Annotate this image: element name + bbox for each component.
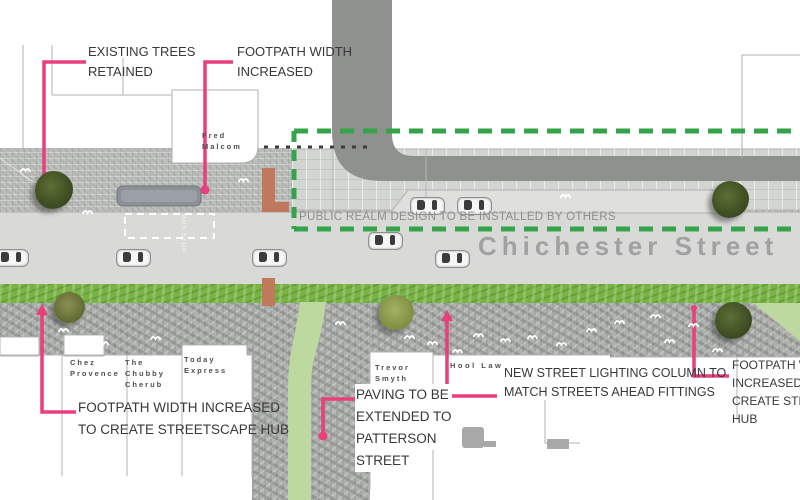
pedestrian-mark-icon bbox=[688, 315, 699, 322]
note-line: NEW STREET LIGHTING COLUMN TO bbox=[504, 364, 726, 383]
note-line: CREATE STREET bbox=[732, 392, 800, 410]
note-line: FOOTPATH WIDTH INCREASED bbox=[78, 397, 289, 419]
pedestrian-mark-icon bbox=[98, 333, 109, 340]
note-line: TO CREATE STREETSCAPE HUB bbox=[78, 419, 289, 441]
note-line: FOOTPATH WIDTH bbox=[237, 42, 352, 62]
note-line: INCREASED bbox=[237, 62, 352, 82]
note-paving: PAVING TO BE EXTENDED TO PATTERSON STREE… bbox=[355, 384, 455, 472]
pedestrian-mark-icon bbox=[500, 330, 511, 337]
pedestrian-mark-icon bbox=[560, 186, 571, 193]
tree-icon bbox=[712, 181, 749, 218]
building-label-hool-law: Hool Law bbox=[450, 360, 503, 371]
pedestrian-mark-icon bbox=[614, 312, 625, 319]
note-line: EXISTING TREES bbox=[88, 42, 195, 62]
pedestrian-mark-icon bbox=[20, 160, 31, 167]
tree-icon bbox=[379, 295, 414, 330]
plan-canvas: EXISTING TREES RETAINED FOOTPATH WIDTH I… bbox=[0, 0, 800, 500]
note-line: INCREASED TO bbox=[732, 374, 800, 392]
tree-icon bbox=[54, 292, 85, 323]
note-line: EXTENDED TO bbox=[355, 406, 455, 428]
pedestrian-mark-icon bbox=[586, 320, 597, 327]
pedestrian-mark-icon bbox=[556, 334, 567, 341]
note-public-realm: PUBLIC REALM DESIGN TO BE INSTALLED BY O… bbox=[299, 211, 616, 223]
pedestrian-mark-icon bbox=[335, 313, 346, 320]
tree-icon bbox=[715, 302, 752, 339]
car-icon bbox=[435, 250, 470, 268]
pedestrian-mark-icon bbox=[527, 327, 538, 334]
pedestrian-mark-icon bbox=[58, 320, 69, 327]
note-line: PAVING TO BE bbox=[355, 384, 452, 406]
pedestrian-mark-icon bbox=[664, 331, 675, 338]
note-lighting: NEW STREET LIGHTING COLUMN TO MATCH STRE… bbox=[504, 364, 726, 402]
car-icon bbox=[116, 249, 151, 267]
note-line: HUB bbox=[732, 410, 800, 428]
note-line: RETAINED bbox=[88, 62, 195, 82]
building-label-chubby-cherub: The Chubby Cherub bbox=[125, 357, 165, 390]
note-line: MATCH STREETS AHEAD FITTINGS bbox=[504, 383, 726, 402]
building-label-fred-malcom: Fred Malcom bbox=[202, 130, 242, 152]
note-footpath-right: FOOTPATH WID INCREASED TO CREATE STREET … bbox=[732, 356, 800, 428]
bus-stop-marking-text: BUS STOP bbox=[180, 215, 186, 253]
tree-icon bbox=[35, 171, 73, 209]
pedestrian-mark-icon bbox=[650, 306, 661, 313]
note-footpath-left: FOOTPATH WIDTH INCREASED TO CREATE STREE… bbox=[78, 397, 289, 441]
note-existing-trees: EXISTING TREES RETAINED bbox=[88, 42, 195, 82]
pedestrian-mark-icon bbox=[150, 328, 161, 335]
building-label-chez-provence: Chez Provence bbox=[70, 357, 120, 379]
car-icon bbox=[252, 249, 287, 267]
note-line: STREET bbox=[355, 450, 412, 472]
note-line: PATTERSON bbox=[355, 428, 440, 450]
pedestrian-mark-icon bbox=[82, 202, 93, 209]
pedestrian-mark-icon bbox=[238, 170, 249, 177]
car-icon bbox=[368, 232, 403, 250]
pedestrian-mark-icon bbox=[404, 327, 415, 334]
pedestrian-mark-icon bbox=[452, 341, 463, 348]
street-name-label: Chichester Street bbox=[478, 231, 778, 262]
pedestrian-mark-icon bbox=[712, 340, 723, 347]
note-line: FOOTPATH WID bbox=[732, 356, 800, 374]
building-label-today-express: Today Express bbox=[184, 354, 227, 376]
pedestrian-mark-icon bbox=[427, 333, 438, 340]
note-footpath-top: FOOTPATH WIDTH INCREASED bbox=[237, 42, 352, 82]
pedestrian-mark-icon bbox=[473, 325, 484, 332]
car-icon bbox=[0, 249, 29, 267]
